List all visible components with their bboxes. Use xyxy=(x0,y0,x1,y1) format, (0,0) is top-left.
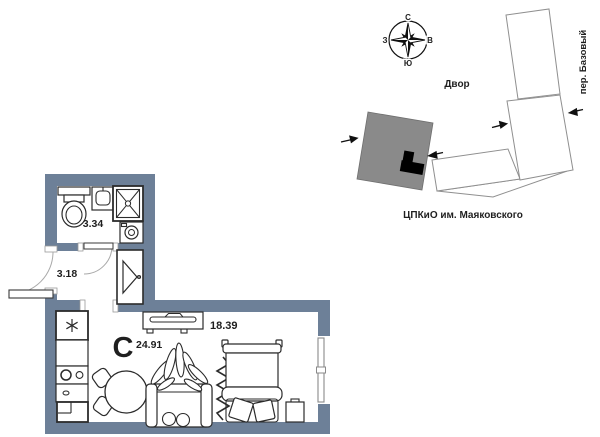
arrow-icon xyxy=(341,136,357,142)
highlighted-building-shape xyxy=(357,112,433,190)
compass-east-label: В xyxy=(427,36,433,45)
wall-room-top xyxy=(113,300,330,312)
bathroom-fixtures xyxy=(58,186,143,243)
bed xyxy=(222,340,282,423)
compass-north-label: С xyxy=(405,13,411,22)
window-sash-tick xyxy=(317,367,326,373)
highlighted-building xyxy=(357,112,433,190)
wardrobe xyxy=(117,250,143,304)
plan-canvas: 3.34 3.18 С 24.91 18.39 xyxy=(0,0,600,437)
floorplan-page: 3.34 3.18 С 24.91 18.39 xyxy=(0,0,600,437)
sofa xyxy=(146,343,212,427)
entrance-door xyxy=(9,252,53,298)
round-table-icon xyxy=(105,371,147,413)
dining-set xyxy=(91,367,147,417)
stove-icon xyxy=(56,366,88,384)
fridge-icon xyxy=(56,311,88,340)
apartment-type-letter: С xyxy=(113,332,134,364)
building-top xyxy=(506,9,560,99)
bathroom-door xyxy=(84,243,113,274)
tv-console xyxy=(143,312,203,333)
compass-rose-icon: С Ю З В xyxy=(382,13,433,68)
compass-west-label: З xyxy=(382,36,387,45)
bed-mattress xyxy=(226,353,278,387)
compass-south-label: Ю xyxy=(404,59,412,68)
arrow-icon xyxy=(492,122,507,128)
wall-top xyxy=(45,174,155,186)
park-label: ЦПКиО им. Маяковского xyxy=(403,210,523,221)
window xyxy=(316,336,330,404)
courtyard-label: Двор xyxy=(444,79,469,90)
bed-headboard xyxy=(223,344,281,353)
bathroom-area-label: 3.34 xyxy=(83,218,104,230)
arrow-icon xyxy=(429,152,443,158)
kitchen-sink-icon xyxy=(57,402,88,422)
living-area-label: 18.39 xyxy=(210,320,238,332)
street-label: пер. Базовый xyxy=(578,30,589,95)
bathroom-door-arc xyxy=(84,246,112,274)
hallway-area-label: 3.18 xyxy=(57,268,78,280)
floor-plan: 3.34 3.18 С 24.91 18.39 xyxy=(9,174,330,434)
wall-right-of-bath xyxy=(143,174,155,312)
kitchen xyxy=(56,311,88,422)
kitchen-counter xyxy=(56,340,88,366)
shower-icon xyxy=(113,186,143,221)
bathroom-door-leaf xyxy=(84,243,113,249)
washbasin-icon xyxy=(92,187,114,210)
arrow-icon xyxy=(570,109,584,115)
studio-area-label: 24.91 xyxy=(136,339,162,351)
site-plan: С Ю З В Двор пер. Базовый ЦПКиО им. Маяк… xyxy=(341,9,589,221)
building-outlines xyxy=(432,9,573,197)
nightstand xyxy=(286,399,304,422)
kitchen-drawer xyxy=(56,384,88,402)
entrance-door-leaf xyxy=(9,290,53,298)
wall-right-upper xyxy=(318,312,330,338)
washing-machine-icon xyxy=(120,222,143,243)
pillow xyxy=(253,400,276,423)
building-middle xyxy=(507,95,573,180)
wall-left-upper xyxy=(45,174,57,252)
